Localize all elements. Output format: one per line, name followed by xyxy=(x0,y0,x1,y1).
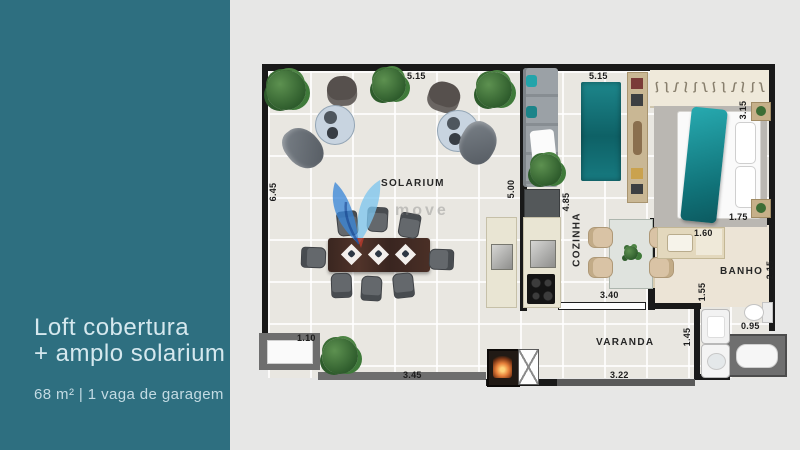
living-rug xyxy=(581,82,621,181)
sideboard-item xyxy=(633,121,642,155)
laundry-tub xyxy=(701,309,730,344)
dining-chair xyxy=(331,273,353,299)
nightstand xyxy=(751,199,771,218)
washer-drum xyxy=(707,353,726,370)
watermark-text: move xyxy=(395,202,449,220)
plant-varanda xyxy=(322,338,358,374)
kitchen-varanda-sill xyxy=(558,302,646,310)
listing-subtitle: 68 m² | 1 vaga de garagem xyxy=(34,386,224,403)
wall-bathroom-left-lower xyxy=(648,288,655,310)
dim-living-top: 5.15 xyxy=(589,71,608,81)
planter-box xyxy=(267,340,313,364)
dim-varanda-bottom-left: 3.45 xyxy=(403,370,422,380)
sideboard-item xyxy=(631,94,643,106)
sideboard-item xyxy=(631,184,643,194)
dim-living-left: 4.85 xyxy=(561,185,571,219)
listing-title-line2: + amplo solarium xyxy=(34,341,225,367)
vanity-sink xyxy=(667,234,693,252)
nightstand-plant xyxy=(756,203,766,213)
dim-banho-bottom: 0.95 xyxy=(741,321,760,331)
fridge xyxy=(524,189,560,218)
hanger-icon: ʃ xyxy=(665,82,669,93)
dining-chair xyxy=(301,247,327,269)
dim-varanda-bottom-right: 3.22 xyxy=(610,370,629,380)
dim-bedroom-right: 3.15 xyxy=(738,93,748,127)
nightstand xyxy=(751,102,771,121)
room-label-varanda: VARANDA xyxy=(596,337,654,348)
wardrobe-hangers: ʃʃʃʃʃʃʃʃʃʃʃʃ xyxy=(652,72,767,102)
kitchen-table-plant xyxy=(624,246,638,260)
nightstand-plant xyxy=(756,106,766,116)
grill-counter xyxy=(486,217,517,308)
barbecue-grill xyxy=(487,349,520,387)
sideboard-item xyxy=(631,78,643,89)
kitchen-table xyxy=(609,219,653,289)
hanger-icon: ʃ xyxy=(731,81,737,92)
round-table-left xyxy=(315,105,355,145)
shower xyxy=(726,334,787,377)
bathroom-vanity xyxy=(657,227,725,259)
kitchen-chair xyxy=(649,257,674,278)
room-label-cozinha: COZINHA xyxy=(572,208,583,272)
slide-canvas: Loft cobertura + amplo solarium 68 m² | … xyxy=(0,0,800,450)
dim-solarium-right: 5.00 xyxy=(506,172,516,206)
room-label-solarium: SOLARIUM xyxy=(381,178,445,189)
dim-banho-right: 2.15 xyxy=(765,253,775,287)
plant-top-left xyxy=(266,70,306,110)
sofa-pillow-teal xyxy=(526,75,537,87)
listing-title-line1: Loft cobertura xyxy=(34,315,225,341)
hanger-icon: ʃ xyxy=(673,81,679,92)
wall-laundry-left xyxy=(694,308,700,380)
varanda-parapet-right xyxy=(557,379,695,386)
toilet xyxy=(744,304,764,321)
grill-counter-sink xyxy=(491,244,513,270)
plant-top-center xyxy=(372,68,406,102)
grill-fire xyxy=(493,356,512,378)
plant-sofa xyxy=(530,154,562,186)
cooktop xyxy=(527,274,555,304)
listing-title: Loft cobertura + amplo solarium xyxy=(34,315,225,367)
dim-solarium-left: 6.45 xyxy=(268,175,278,209)
placemat xyxy=(395,244,416,265)
washer xyxy=(701,344,730,378)
dining-chair xyxy=(429,249,455,271)
armchair-left xyxy=(326,75,358,107)
hanger-icon: ʃ xyxy=(722,82,726,93)
dim-banho-door: 1.55 xyxy=(697,275,707,309)
bed-pillow xyxy=(735,122,756,164)
dim-varanda-right: 1.45 xyxy=(682,320,692,354)
dim-varanda-step: 1.10 xyxy=(297,333,316,343)
hanger-icon: ʃ xyxy=(693,82,697,93)
room-label-banho: BANHO xyxy=(720,266,763,277)
sideboard-item xyxy=(631,168,643,179)
dim-solarium-top: 5.15 xyxy=(407,71,426,81)
dim-bedroom-bottom: 1.75 xyxy=(729,212,748,222)
dim-banho-vanity: 1.60 xyxy=(694,228,713,238)
laundry-tub-basin xyxy=(707,316,725,338)
hanger-icon: ʃ xyxy=(702,81,708,92)
plant-top-right xyxy=(476,72,512,108)
hanger-icon: ʃ xyxy=(740,81,746,92)
shower-tray xyxy=(736,344,778,368)
kitchen-counter xyxy=(523,217,561,308)
dining-chair xyxy=(360,275,382,301)
dining-chair xyxy=(392,272,415,299)
hanger-icon: ʃ xyxy=(759,81,765,92)
kitchen-chair xyxy=(588,257,613,278)
kitchen-sink xyxy=(530,240,556,268)
hanger-icon: ʃ xyxy=(751,82,755,93)
sidebar-panel: Loft cobertura + amplo solarium 68 m² | … xyxy=(0,0,230,450)
kitchen-chair xyxy=(588,227,613,248)
duct-shaft xyxy=(518,349,539,385)
hanger-icon: ʃ xyxy=(683,81,689,92)
sideboard xyxy=(627,72,648,203)
sofa-pillow-teal xyxy=(526,106,537,118)
dim-kitchen-bottom: 3.40 xyxy=(600,290,619,300)
hanger-icon: ʃ xyxy=(711,81,717,92)
hanger-icon: ʃ xyxy=(654,81,660,92)
